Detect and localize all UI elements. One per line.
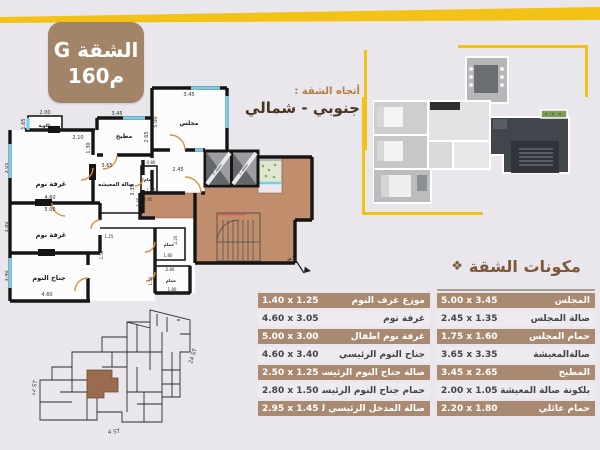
table-row: 2.20 x 1.80حمام عائلي [437,401,595,416]
dim: 2.50 [99,250,104,259]
dim: 2.65 [144,131,150,142]
table-row: 3.65 x 3.35صالةالمعيشة [437,347,595,362]
dim: 2.10 [72,135,83,141]
highlighted-unit [87,370,118,398]
bedroom1-label: غرفة نوم [36,180,67,188]
components-title: مكونات الشقة [469,257,581,276]
dim: 1.50 [148,276,153,285]
dim: 2.20 [173,235,178,244]
room-name: بلكونة صالة المعيشة [501,386,595,396]
corner-bracket-bottom-left [362,212,483,215]
table-row: 2.80 x 1.50حمام جناح النوم الرئيسي [258,383,430,398]
room-dimensions: 1.40 x 1.25 [258,296,322,306]
render-3d-plan [373,55,573,205]
dim: 3.65 [101,163,112,169]
apartment-name: الشقة G [54,37,139,63]
room-dimensions: 2.50 x 1.25 [258,368,322,378]
table-row: 2.45 x 1.35صالة المجلس [437,311,595,326]
table-row: 1.75 x 1.60حمام المجلس [437,329,595,344]
dim: 3.05 [5,162,10,173]
table-row: 2.95 x 1.45صالة المدخل الرئيسي للشقة [258,401,430,416]
dim: 0.80 [147,160,156,165]
site-plan: 12 ST 24 ST 4 ST [32,292,232,448]
bedroom2-label: غرفة نوم [36,231,67,239]
corner-bracket-top-right-v [585,45,588,97]
room-dimensions: 2.20 x 1.80 [437,404,501,414]
table-row: 4.60 x 3.40جناح النوم الرئيسي [258,347,430,362]
table-row: 5.00 x 3.00غرفة نوم أطفال [258,329,430,344]
dim: 3.40 [5,270,10,281]
bath3-label: حمام [166,278,176,283]
north-arrow: N [287,256,311,275]
majlis-label: مجلس [180,120,199,127]
dim: 2.45 [172,167,183,173]
corner-bracket-bottom-left-v [362,97,365,214]
table-row: 5.00 x 3.45المجلس [437,293,595,308]
street-left-label: 12 ST [32,379,39,396]
planter [258,160,282,183]
dim: 3.80 [5,221,10,232]
room-dimensions: 3.65 x 3.35 [437,350,501,360]
floor-plan-2d: مصعد 2 مصعد 1 [5,80,325,305]
table-row: 3.45 x 2.65المطبخ [437,365,595,380]
room-name: حمام المجلس [501,332,595,342]
room-dimensions: 1.75 x 1.60 [437,332,501,342]
room-dimensions: 5.00 x 3.45 [437,296,501,306]
dim: 4.60 [44,195,55,201]
room-dimensions: 2.00 x 1.05 [437,386,501,396]
bath1-label: حمام [144,177,154,182]
room-dimensions: 2.80 x 1.50 [258,386,322,396]
table-row: 2.00 x 1.05بلكونة صالة المعيشة [437,383,595,398]
room-name: حمام عائلي [501,404,595,414]
components-heading: ❖ مكونات الشقة [437,257,595,276]
table-row: 4.60 x 3.05غرفة نوم [258,311,430,326]
brochure-canvas: الشقة G 160م أتجاه الشقة : جنوبي - شمالي [0,0,600,450]
dim: 3.45 [111,111,122,117]
room-name: موزع غرف النوم [322,296,430,306]
living-label: صالة المعيشه [98,182,134,188]
room-dimensions: 3.45 x 2.65 [437,368,501,378]
room-name: صالة المجلس [501,314,595,324]
dim: 3.35 [130,184,136,195]
dim: 1.30 [86,142,92,153]
dim: 5.00 [44,207,55,213]
room-name: غرفة نوم [322,314,430,324]
table-row: 1.40 x 1.25موزع غرف النوم [258,293,430,308]
room-name: غرفة نوم أطفال [322,332,430,342]
room-name: صالةالمعيشة [501,350,595,360]
room-name: جناح النوم الرئيسي [322,350,430,360]
room-dimensions: 4.60 x 3.05 [258,314,322,324]
room-dimensions: 2.95 x 1.45 [258,404,322,414]
street-bottom-label: 4 ST [108,429,121,436]
room-dimensions: 4.60 x 3.40 [258,350,322,360]
diamond-icon: ❖ [451,259,463,274]
room-name: المجلس [501,296,595,306]
dim: 1.80 [164,253,173,258]
room-dimensions: 2.45 x 1.35 [437,314,501,324]
balcony-label: بلكونة [38,123,51,129]
corner-bracket-top-right [458,45,588,48]
dim: 1.25 [105,234,114,239]
dim: 5.00 [153,116,159,127]
master-suite-label: جناح النوم [32,274,66,282]
dim: 2.80 [166,267,175,272]
dim: 3.45 [183,92,194,98]
dim: 1.65 [21,118,27,129]
dim: 2.95 [144,197,153,202]
dimensions-table-left: 1.40 x 1.25موزع غرف النوم 4.60 x 3.05غرف… [258,293,430,419]
room-name: صالة جناح النوم الرئيسي [322,368,430,378]
dim: 2.00 [39,110,50,116]
dim: 1.45 [136,197,141,206]
elevators: مصعد 2 مصعد 1 [205,151,258,186]
dimensions-table-right: 5.00 x 3.45المجلس 2.45 x 1.35صالة المجلس… [437,293,595,419]
table-row: 2.50 x 1.25صالة جناح النوم الرئيسي [258,365,430,380]
room-dimensions: 5.00 x 3.00 [258,332,322,342]
room-name: حمام جناح النوم الرئيسي [322,386,430,396]
room-name: صالة المدخل الرئيسي للشقة [322,404,430,414]
heading-divider [437,289,595,291]
room-name: المطبخ [501,368,595,378]
dim: 1.60 [147,188,156,193]
kitchen-label: مطبخ [116,133,133,140]
